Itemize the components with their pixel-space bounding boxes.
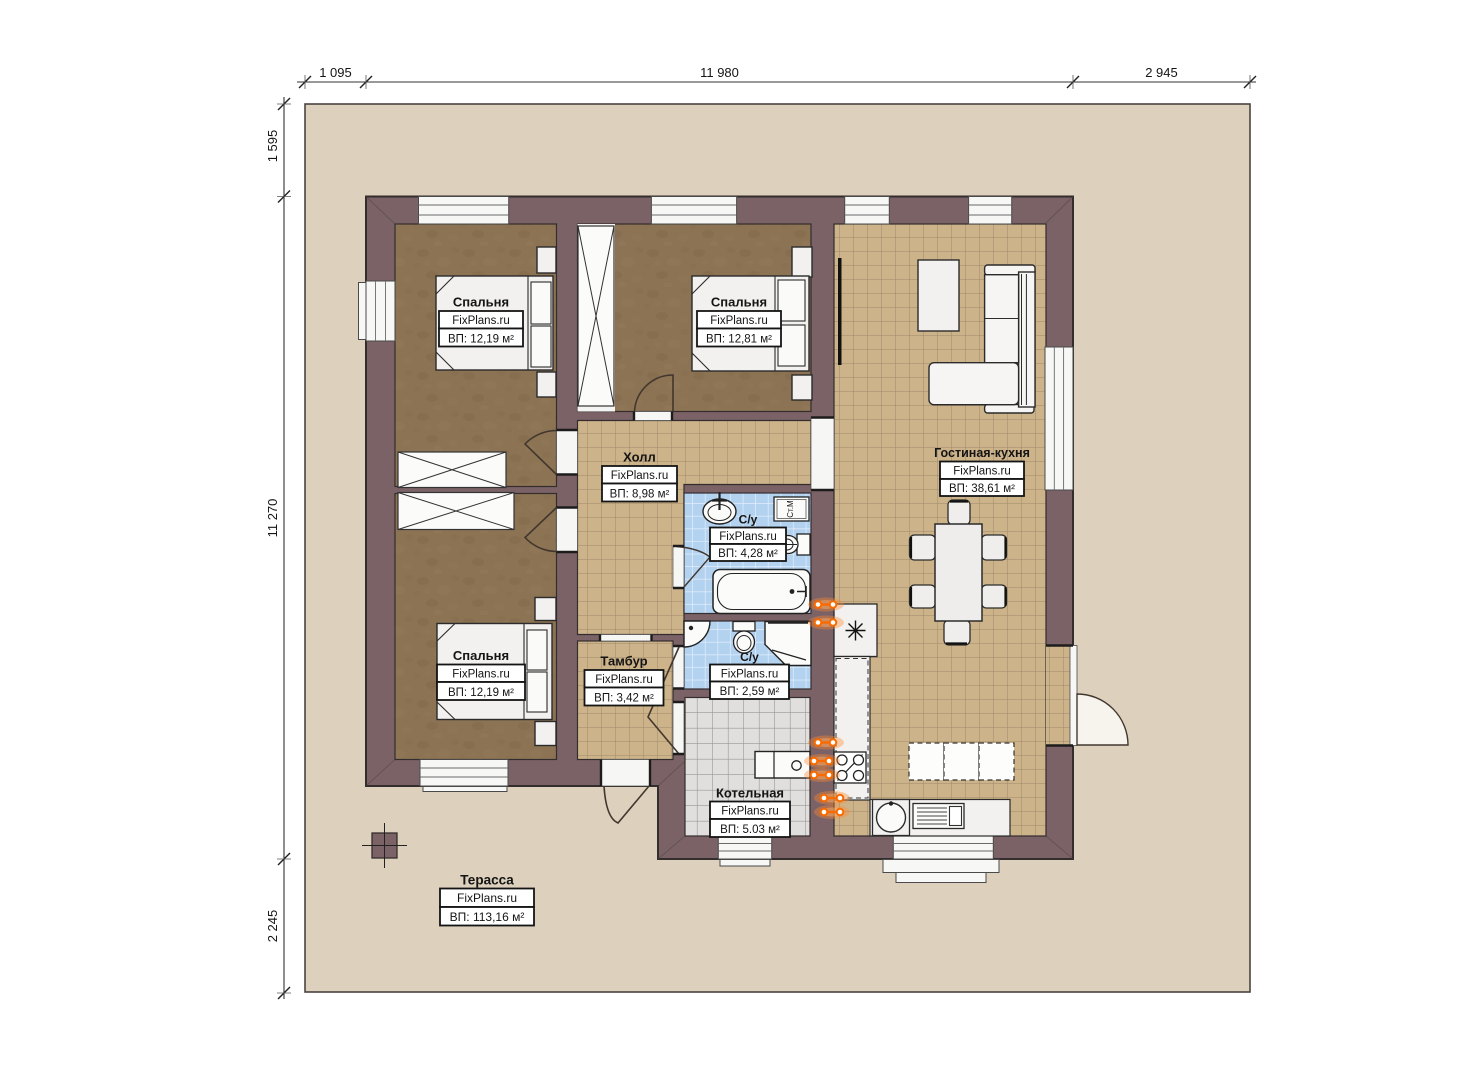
- svg-text:2 245: 2 245: [265, 910, 280, 943]
- svg-text:FixPlans.ru: FixPlans.ru: [953, 466, 1011, 478]
- svg-text:FixPlans.ru: FixPlans.ru: [457, 891, 517, 905]
- svg-text:ВП: 38,61 м²: ВП: 38,61 м²: [949, 483, 1015, 495]
- svg-text:Котельная: Котельная: [716, 786, 784, 801]
- svg-text:FixPlans.ru: FixPlans.ru: [719, 531, 777, 543]
- svg-text:11 270: 11 270: [265, 499, 280, 538]
- svg-text:FixPlans.ru: FixPlans.ru: [595, 674, 653, 686]
- svg-text:1 095: 1 095: [319, 65, 352, 80]
- svg-text:ВП: 2,59 м²: ВП: 2,59 м²: [720, 686, 780, 698]
- svg-text:FixPlans.ru: FixPlans.ru: [721, 669, 779, 681]
- svg-text:Терасса: Терасса: [460, 873, 514, 888]
- svg-text:С/у: С/у: [740, 650, 759, 664]
- svg-text:FixPlans.ru: FixPlans.ru: [611, 470, 669, 482]
- svg-text:Ст.М: Ст.М: [786, 500, 795, 518]
- svg-text:Спальня: Спальня: [453, 295, 509, 310]
- svg-text:ВП: 12,81 м²: ВП: 12,81 м²: [706, 334, 772, 346]
- svg-text:FixPlans.ru: FixPlans.ru: [710, 315, 768, 327]
- svg-text:FixPlans.ru: FixPlans.ru: [452, 669, 510, 681]
- svg-text:ВП: 12,19 м²: ВП: 12,19 м²: [448, 334, 514, 346]
- svg-text:1 595: 1 595: [265, 130, 280, 163]
- svg-text:Спальня: Спальня: [453, 648, 509, 663]
- svg-text:ВП: 3,42 м²: ВП: 3,42 м²: [594, 693, 654, 705]
- svg-text:11 980: 11 980: [700, 65, 739, 80]
- svg-text:ВП: 4,28 м²: ВП: 4,28 м²: [718, 548, 778, 560]
- svg-text:ВП: 113,16 м²: ВП: 113,16 м²: [450, 910, 525, 924]
- svg-text:Тамбур: Тамбур: [600, 654, 647, 669]
- svg-text:С/у: С/у: [739, 513, 758, 527]
- svg-text:FixPlans.ru: FixPlans.ru: [452, 315, 510, 327]
- svg-text:ВП: 5.03 м²: ВП: 5.03 м²: [720, 824, 780, 836]
- svg-text:Гостиная-кухня: Гостиная-кухня: [934, 446, 1030, 460]
- svg-text:FixPlans.ru: FixPlans.ru: [721, 806, 779, 818]
- svg-text:ВП: 12,19 м²: ВП: 12,19 м²: [448, 687, 514, 699]
- svg-text:Холл: Холл: [623, 450, 656, 465]
- svg-text:ВП: 8,98 м²: ВП: 8,98 м²: [610, 489, 670, 501]
- svg-text:Спальня: Спальня: [711, 295, 767, 310]
- svg-text:2 945: 2 945: [1145, 65, 1178, 80]
